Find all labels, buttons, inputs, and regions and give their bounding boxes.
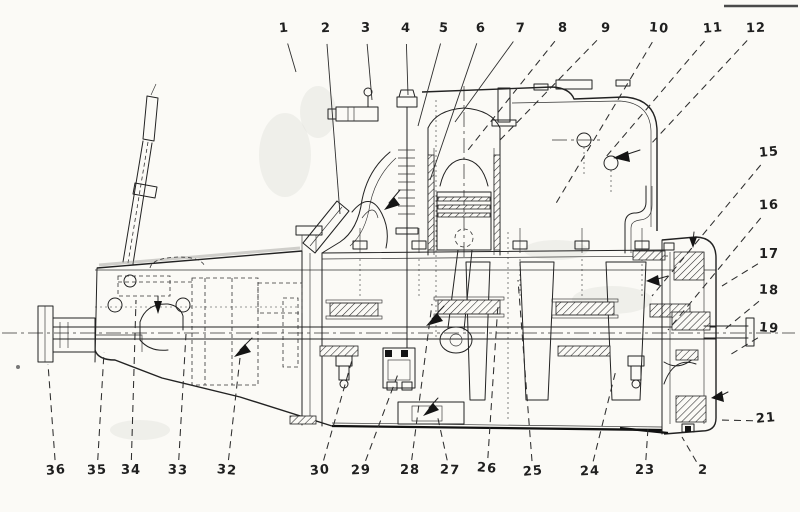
callout-10-top: 10 [645,20,672,37]
callout-4-top: 4 [393,20,420,36]
callout-24-bottom: 24 [577,463,604,479]
leader-line-21 [718,420,753,421]
leader-line-35 [98,352,104,460]
callout-2-top: 2 [313,20,340,36]
leader-line-26 [488,304,498,458]
callout-32-bottom: 32 [213,462,240,479]
callout-23-bottom: 23 [632,463,658,478]
leader-line-30 [324,360,352,460]
leader-line-27 [437,414,447,460]
leader-line-2 [327,44,340,214]
leader-line-10 [555,42,652,205]
leader-line-5 [418,44,441,126]
leader-line-1 [288,43,296,72]
leader-line-3 [367,44,372,100]
callout-8-top: 8 [550,21,576,36]
callout-30-bottom: 30 [306,462,333,479]
leader-line-12 [650,41,747,145]
leader-line-9 [500,40,597,140]
leader-line-17 [722,264,758,286]
callout-9-top: 9 [593,20,620,36]
callout-27-bottom: 27 [437,462,464,478]
callout-36-bottom: 36 [42,462,69,479]
leader-line-25 [518,280,532,461]
callout-18-right: 18 [756,282,783,298]
callout-5-top: 5 [430,20,457,37]
callout-33-bottom: 33 [165,462,192,478]
leader-line-32 [228,358,240,460]
callout-3-top: 3 [353,21,379,36]
callout-26-bottom: 26 [473,460,500,477]
callout-6-top: 6 [467,20,494,37]
callout-11-top: 11 [699,20,726,37]
callout-1-top: 1 [270,20,297,37]
leader-line-6 [430,43,477,180]
callout-21-right: 21 [752,410,779,427]
leader-line-4 [406,44,408,95]
callout-2-bottom: 2 [690,462,717,478]
leader-line-29 [366,374,398,461]
figure-canvas: 1234567891011121516171819213635343332302… [0,0,800,512]
leader-line-28 [412,304,432,460]
callout-15-right: 15 [755,144,782,161]
leader-line-36 [48,364,55,460]
leader-line-8 [468,41,555,150]
callout-34-bottom: 34 [118,463,144,478]
callout-7-top: 7 [508,20,535,36]
leader-line-24 [593,370,616,461]
callout-12-top: 12 [743,20,770,36]
leader-line-16 [668,218,761,330]
callout-35-bottom: 35 [84,462,111,478]
callout-19-right: 19 [755,320,782,337]
leader-line-19 [728,338,758,356]
callout-28-bottom: 28 [397,463,423,478]
leader-line-18 [724,301,759,330]
callout-16-right: 16 [756,197,783,213]
leader-line-2 [682,437,696,462]
leader-line-23 [646,428,648,460]
callout-25-bottom: 25 [519,463,546,480]
callout-17-right: 17 [756,247,782,262]
leader-line-layer [0,0,800,512]
callout-29-bottom: 29 [348,462,375,478]
leader-line-33 [179,334,186,460]
leader-line-34 [131,300,136,460]
leader-line-15 [652,165,761,296]
